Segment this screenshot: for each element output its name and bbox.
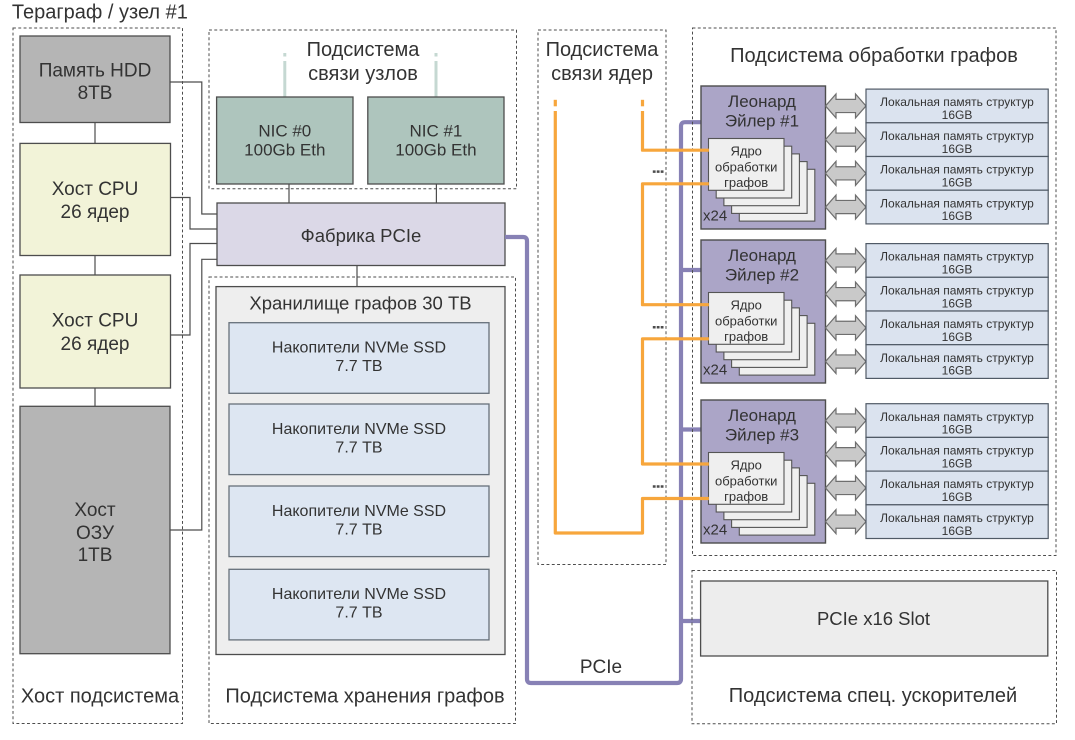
svg-text:7.7 ТВ: 7.7 ТВ [335,439,382,456]
svg-text:16GB: 16GB [942,209,973,223]
svg-text:обработки: обработки [715,473,777,488]
svg-text:Хост CPU: Хост CPU [52,179,139,200]
svg-text:Локальная память структур: Локальная память структур [880,477,1034,491]
svg-text:16GB: 16GB [942,142,973,156]
svg-text:обработки: обработки [715,159,777,174]
svg-text:Подсистема обработки графов: Подсистема обработки графов [730,45,1018,67]
svg-text:16GB: 16GB [942,456,973,470]
svg-text:Локальная память структур: Локальная память структур [880,196,1034,210]
svg-text:Хост: Хост [74,500,116,521]
svg-text:x24: x24 [703,208,727,225]
svg-text:Локальная память структур: Локальная память структур [880,283,1034,297]
svg-text:NIC #1: NIC #1 [409,121,462,140]
svg-text:Леонард: Леонард [728,92,796,111]
svg-text:Накопители NVMe SSD: Накопители NVMe SSD [272,586,446,603]
svg-text:графов: графов [724,175,768,190]
svg-text:16GB: 16GB [942,108,973,122]
svg-text:100Gb Eth: 100Gb Eth [244,141,325,160]
svg-text:8ТВ: 8ТВ [78,83,113,104]
svg-text:16GB: 16GB [942,176,973,190]
svg-text:Локальная память структур: Локальная память структур [880,317,1034,331]
svg-text:графов: графов [724,329,768,344]
svg-text:16GB: 16GB [942,490,973,504]
svg-text:Локальная память структур: Локальная память структур [880,410,1034,424]
svg-text:16GB: 16GB [942,524,973,538]
svg-text:Локальная память структур: Локальная память структур [880,444,1034,458]
svg-text:x24: x24 [703,362,727,379]
svg-text:7.7 ТВ: 7.7 ТВ [335,605,382,622]
svg-text:16GB: 16GB [942,263,973,277]
svg-text:NIC #0: NIC #0 [258,121,311,140]
svg-text:Ядро: Ядро [730,144,761,159]
svg-text:7.7 ТВ: 7.7 ТВ [335,358,382,375]
svg-text:Хост CPU: Хост CPU [52,311,139,332]
svg-text:ОЗУ: ОЗУ [76,523,115,544]
svg-text:Хост подсистема: Хост подсистема [21,686,180,708]
svg-text:Накопители NVMe SSD: Накопители NVMe SSD [272,503,446,520]
svg-text:16GB: 16GB [942,296,973,310]
svg-text:связи ядер: связи ядер [551,63,653,85]
svg-text:Подсистема хранения графов: Подсистема хранения графов [225,686,504,708]
svg-text:26 ядер: 26 ядер [61,334,130,355]
svg-text:100Gb Eth: 100Gb Eth [395,141,476,160]
svg-text:Фабрика PCIe: Фабрика PCIe [301,225,422,246]
svg-text:Локальная память структур: Локальная память структур [880,511,1034,525]
svg-text:PCIe: PCIe [580,657,622,678]
svg-text:Эйлер #1: Эйлер #1 [725,111,799,130]
svg-text:Эйлер #3: Эйлер #3 [725,425,799,444]
svg-text:26 ядер: 26 ядер [61,202,130,223]
svg-text:Локальная память структур: Локальная память структур [880,163,1034,177]
svg-text:Эйлер #2: Эйлер #2 [725,265,799,284]
svg-text:Локальная память структур: Локальная память структур [880,250,1034,264]
svg-text:связи узлов: связи узлов [308,63,418,85]
svg-text:16GB: 16GB [942,330,973,344]
svg-text:Леонард: Леонард [728,246,796,265]
svg-text:Память HDD: Память HDD [39,61,152,82]
svg-text:7.7 ТВ: 7.7 ТВ [335,521,382,538]
svg-text:Накопители NVMe SSD: Накопители NVMe SSD [272,421,446,438]
svg-text:Тераграф / узел #1: Тераграф / узел #1 [12,1,188,23]
svg-text:Леонард: Леонард [728,406,796,425]
svg-text:1ТВ: 1ТВ [78,545,113,566]
svg-text:обработки: обработки [715,313,777,328]
svg-text:Ядро: Ядро [730,298,761,313]
svg-text:x24: x24 [703,522,727,539]
svg-text:Накопители NVMe SSD: Накопители NVMe SSD [272,340,446,357]
svg-text:Хранилище графов 30 ТВ: Хранилище графов 30 ТВ [249,293,471,314]
svg-text:Подсистема спец. ускорителей: Подсистема спец. ускорителей [729,685,1017,707]
svg-text:Локальная память структур: Локальная память структур [880,129,1034,143]
svg-text:16GB: 16GB [942,364,973,378]
svg-text:Локальная память структур: Локальная память структур [880,351,1034,365]
svg-text:Локальная память структур: Локальная память структур [880,95,1034,109]
svg-text:Ядро: Ядро [730,458,761,473]
svg-text:графов: графов [724,489,768,504]
svg-text:Подсистема: Подсистема [546,39,660,61]
svg-text:PCIe x16 Slot: PCIe x16 Slot [817,608,930,629]
svg-text:16GB: 16GB [942,423,973,437]
svg-text:Подсистема: Подсистема [307,39,421,61]
